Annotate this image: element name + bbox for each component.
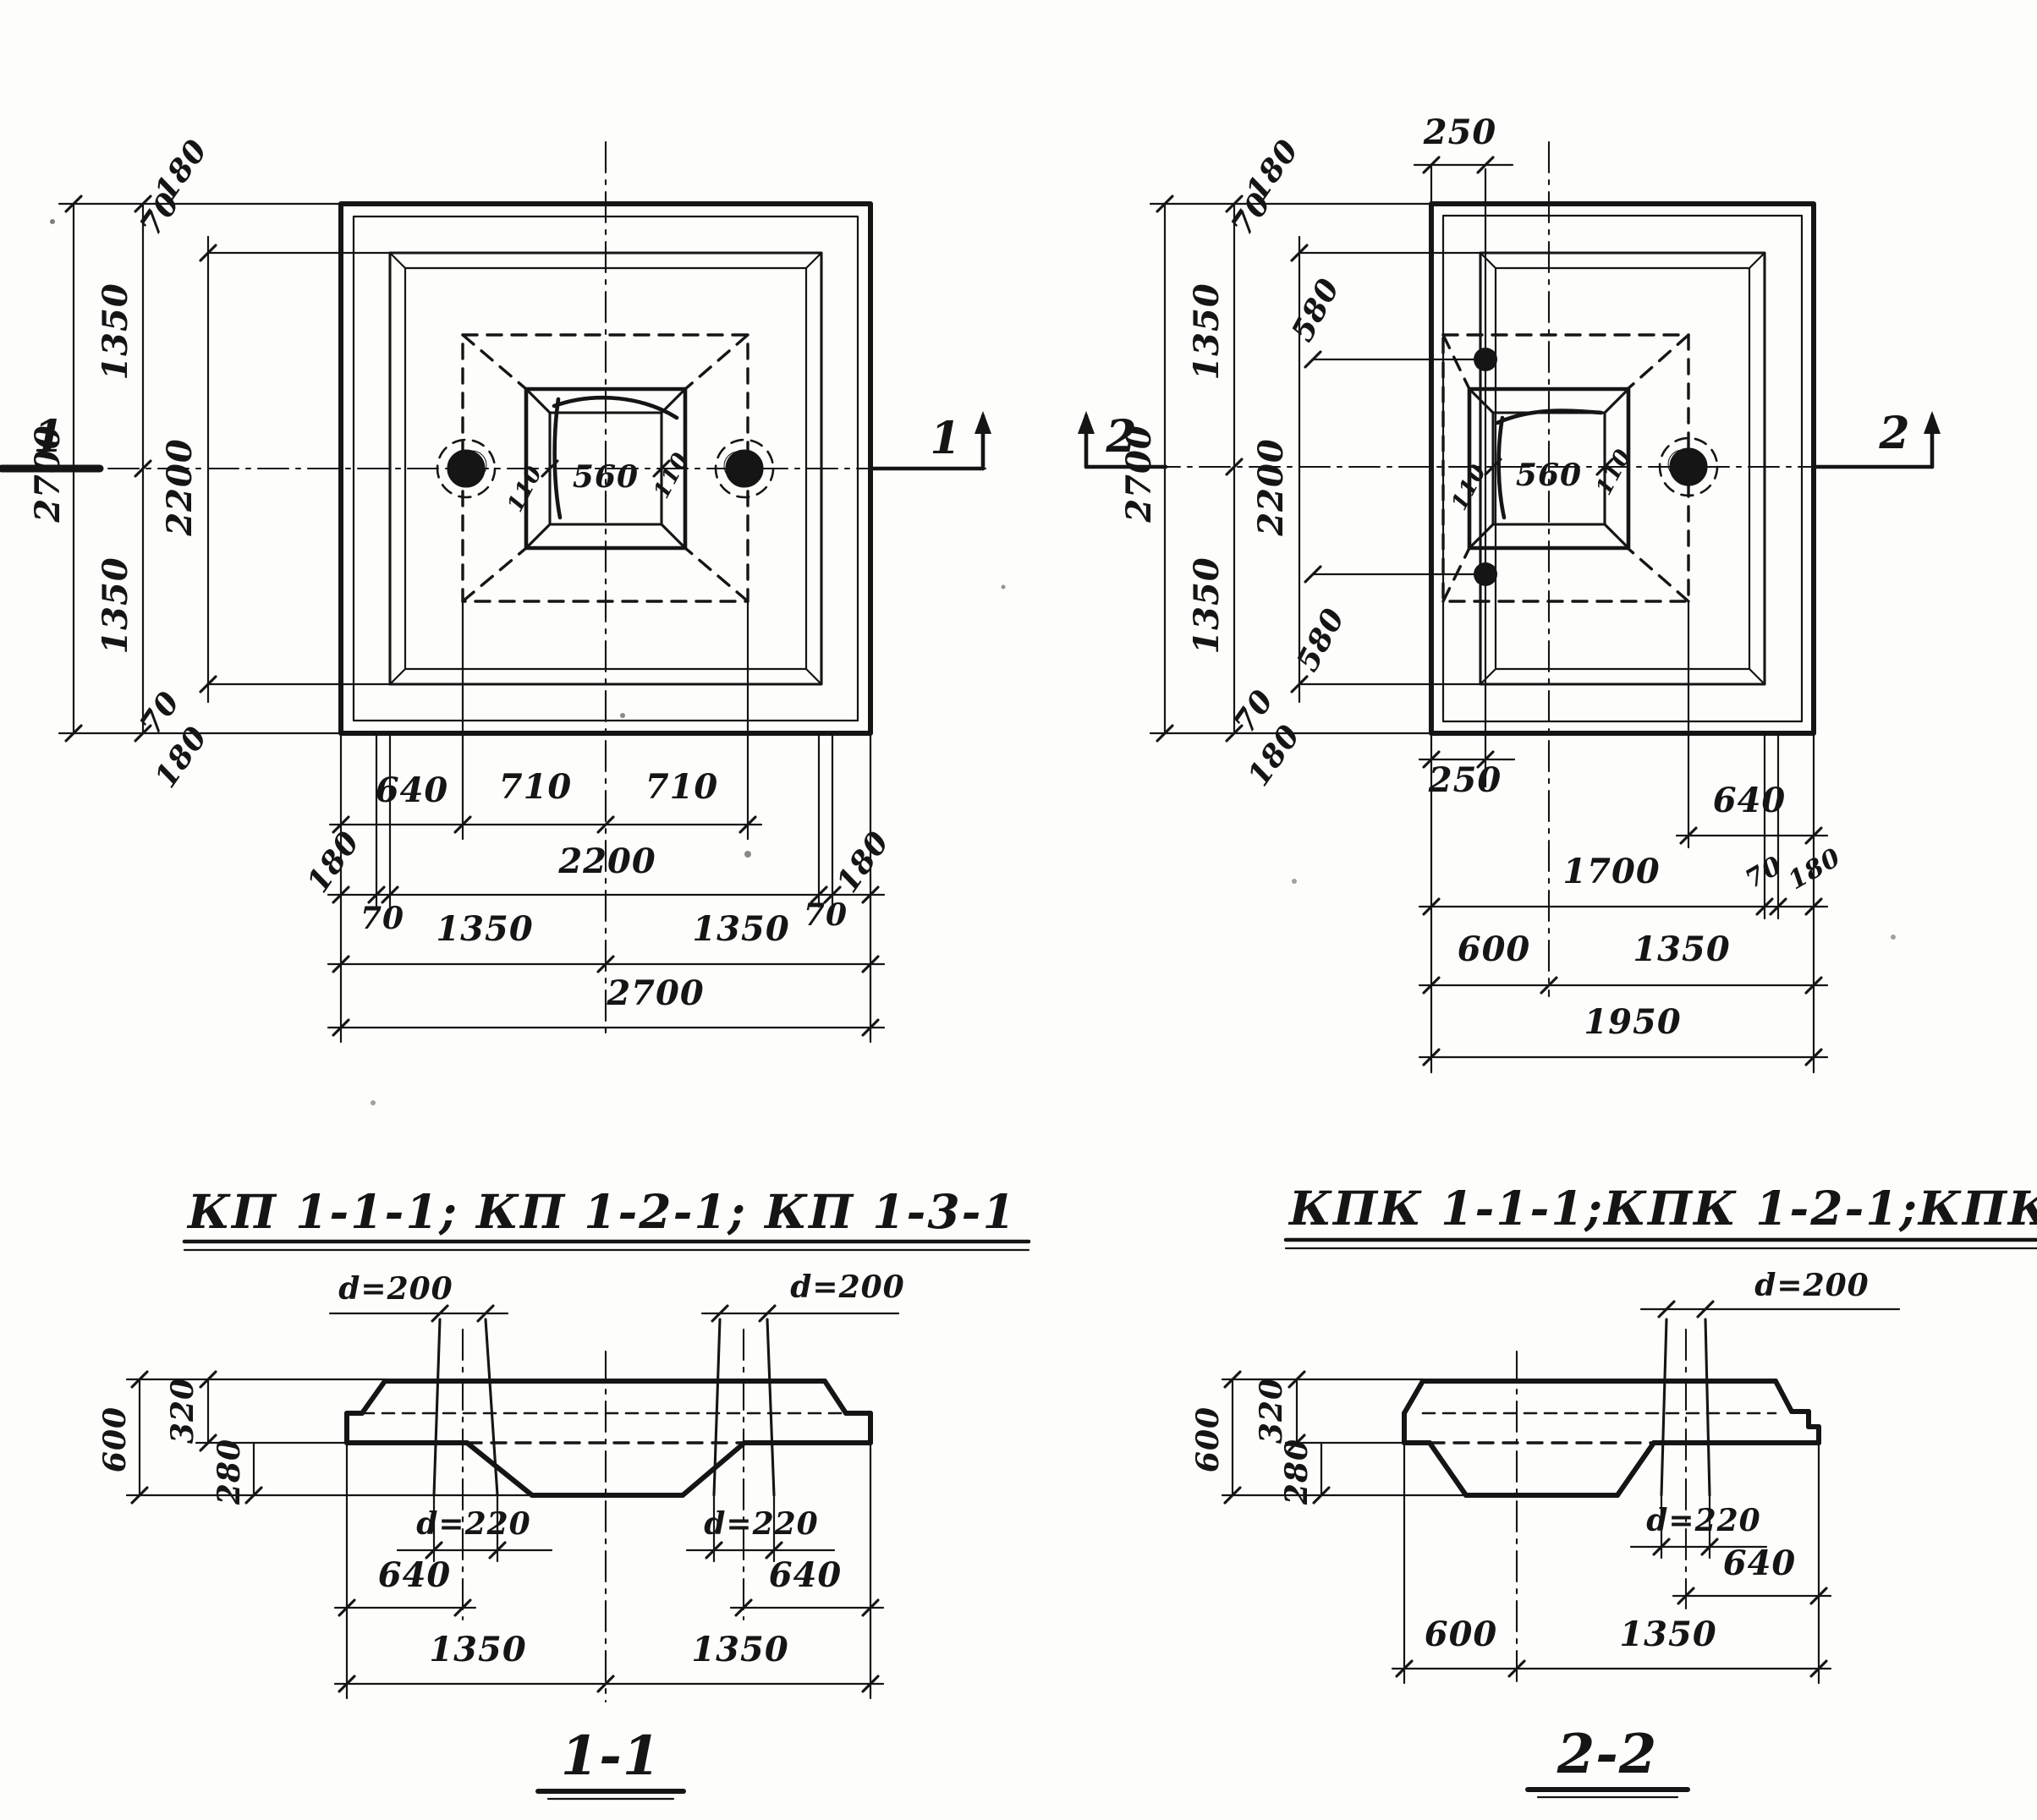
dim-280: 280 <box>1279 1439 1315 1505</box>
dim-560: 560 <box>573 459 639 495</box>
dim-1350: 1350 <box>1619 1614 1716 1654</box>
dim-110: 110 <box>502 462 547 517</box>
dim-d220: d=220 <box>416 1506 530 1542</box>
plan-right: 2 2 250 2700 1350 1350 2200 180 70 580 5… <box>1078 112 1941 1072</box>
dim-1700: 1700 <box>1562 852 1660 891</box>
dim-1350: 1350 <box>436 909 533 949</box>
height-dimensions: 600 320 280 <box>97 1372 532 1505</box>
mark-titles: КП 1-1-1; КП 1-2-1; КП 1-3-1 КПК 1-1-1;К… <box>184 1181 2037 1250</box>
socket-dimensions: 110 560 110 <box>1447 445 1636 515</box>
body-outline <box>1404 1381 1819 1495</box>
dim-250: 250 <box>1428 760 1502 800</box>
dim-2700: 2700 <box>1119 425 1159 523</box>
dim-600: 600 <box>1190 1406 1226 1472</box>
dim-70: 70 <box>1741 851 1787 895</box>
dim-640: 640 <box>378 1555 452 1595</box>
dim-1350: 1350 <box>1187 282 1227 380</box>
dim-d200: d=200 <box>790 1269 904 1305</box>
centerlines <box>108 142 986 1033</box>
dim-1350: 1350 <box>1187 556 1227 654</box>
d200-dimensions: d=200 d=200 <box>330 1269 905 1321</box>
dim-1350: 1350 <box>692 909 789 949</box>
dim-640: 640 <box>1723 1543 1797 1583</box>
dim-180: 180 <box>300 825 367 899</box>
dim-1350: 1350 <box>1633 929 1730 969</box>
dim-600: 600 <box>97 1406 133 1472</box>
title-kp: КП 1-1-1; КП 1-2-1; КП 1-3-1 <box>186 1184 1017 1239</box>
dim-d200: d=200 <box>338 1271 453 1307</box>
dim-2700: 2700 <box>28 425 68 523</box>
top-250-dimension: 250 <box>1414 112 1513 204</box>
left-dimension-stack: 2700 1350 1350 2200 180 70 580 580 70 18… <box>1119 133 1493 792</box>
section-title: 2-2 <box>1557 1723 1658 1786</box>
dim-580: 580 <box>1285 272 1348 348</box>
socket-scribble <box>554 397 677 418</box>
title-kpk: КПК 1-1-1;КПК 1-2-1;КПК 1-3-1 <box>1288 1181 2037 1236</box>
bottom-dimensions: 640 640 1350 1350 <box>335 1443 883 1698</box>
dim-2200: 2200 <box>1251 438 1291 536</box>
bottom-dimension-rows: 250 640 1700 70 180 600 1350 1950 <box>1419 601 1846 1072</box>
bottom-dimensions: 640 600 1350 <box>1392 1443 1831 1683</box>
foundation-drawing: 1 1 2700 1350 1350 2200 180 70 70 180 11… <box>0 0 2037 1820</box>
socket-dimensions: 110 560 110 <box>502 448 694 517</box>
dim-70: 70 <box>360 901 404 936</box>
dim-2200: 2200 <box>557 841 656 881</box>
dim-180: 180 <box>1783 842 1846 896</box>
plan-left: 1 1 2700 1350 1350 2200 180 70 70 180 11… <box>2 133 991 1042</box>
dim-640: 640 <box>376 770 449 810</box>
dim-560: 560 <box>1516 458 1582 493</box>
dim-d220: d=220 <box>704 1506 818 1542</box>
dim-1950: 1950 <box>1584 1002 1681 1042</box>
section-2-2: d=200 600 320 280 d=220 640 600 1350 2-2 <box>1190 1268 1899 1797</box>
dim-280: 280 <box>211 1439 247 1505</box>
height-dimensions: 600 320 280 <box>1190 1372 1466 1505</box>
socket-scribble <box>555 399 560 518</box>
dim-2700: 2700 <box>606 973 704 1013</box>
blueprint-sheet: 1 1 2700 1350 1350 2200 180 70 70 180 11… <box>0 0 2037 1820</box>
scan-noise <box>50 219 1896 1105</box>
dim-70: 70 <box>804 897 848 933</box>
dim-640: 640 <box>769 1555 843 1595</box>
dim-d220: d=220 <box>1646 1503 1760 1538</box>
dim-320: 320 <box>1254 1378 1289 1444</box>
dim-250: 250 <box>1423 112 1497 152</box>
section-title: 1-1 <box>561 1724 662 1788</box>
dim-1350: 1350 <box>429 1630 526 1669</box>
dim-1350: 1350 <box>96 282 135 380</box>
section-mark-label: 2 <box>1878 408 1910 459</box>
section-mark-label: 1 <box>930 413 961 464</box>
dim-710: 710 <box>499 767 573 807</box>
dim-2200: 2200 <box>160 438 200 536</box>
dim-1350: 1350 <box>691 1630 788 1669</box>
dim-d200: d=200 <box>1754 1268 1869 1303</box>
d200-dimension: d=200 <box>1641 1268 1899 1317</box>
dim-600: 600 <box>1458 929 1531 969</box>
dim-600: 600 <box>1425 1614 1498 1654</box>
dim-320: 320 <box>165 1378 200 1444</box>
dim-1350: 1350 <box>96 556 135 654</box>
body-outline <box>347 1381 870 1495</box>
section-1-1: d=200 d=200 600 320 280 d=220 d=220 640 <box>97 1269 905 1799</box>
dim-710: 710 <box>645 767 719 807</box>
dim-640: 640 <box>1713 781 1787 820</box>
